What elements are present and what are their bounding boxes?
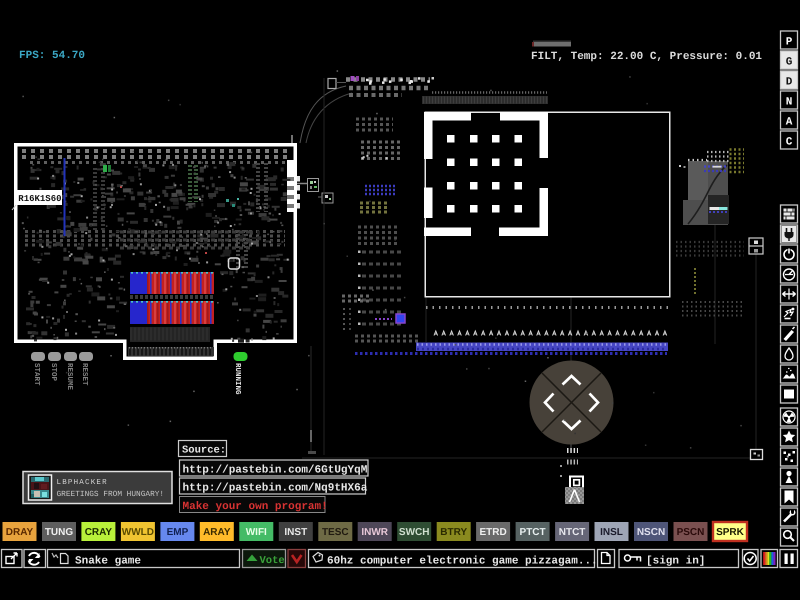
svg-text:http://pastebin.com/Nq9tHX6a: http://pastebin.com/Nq9tHX6a: [183, 482, 368, 494]
svg-text:http://pastebin.com/6GtUgYqM: http://pastebin.com/6GtUgYqM: [183, 464, 368, 476]
svg-text:[sign in]: [sign in]: [646, 556, 705, 568]
svg-text:SPRK: SPRK: [716, 527, 745, 538]
svg-text:Make your own program!: Make your own program!: [183, 501, 328, 513]
svg-text:PTCT: PTCT: [520, 527, 546, 538]
svg-text:EMP: EMP: [167, 527, 189, 538]
svg-text:60hz computer electronic game: 60hz computer electronic game pizzagam..…: [327, 556, 598, 568]
svg-text:ETRD: ETRD: [479, 527, 506, 538]
svg-text:Source:: Source:: [182, 445, 226, 457]
svg-text:CRAY: CRAY: [85, 527, 113, 538]
svg-text:D: D: [786, 77, 793, 89]
svg-text:G: G: [786, 57, 793, 69]
svg-text:NTCT: NTCT: [559, 527, 586, 538]
svg-text:WWLD: WWLD: [122, 527, 154, 538]
svg-text:Snake game: Snake game: [75, 556, 141, 568]
svg-text:PSCN: PSCN: [677, 527, 705, 538]
svg-text:START: START: [32, 363, 41, 386]
svg-text:INST: INST: [284, 527, 307, 538]
svg-text:C: C: [786, 137, 793, 149]
svg-text:STOP: STOP: [49, 363, 58, 382]
svg-text:FPS: 54.70: FPS: 54.70: [19, 50, 85, 62]
svg-text:WIFI: WIFI: [246, 527, 267, 538]
svg-text:INSL: INSL: [600, 527, 623, 538]
svg-text:ARAY: ARAY: [203, 527, 231, 538]
svg-text:Vote: Vote: [260, 555, 285, 567]
svg-text:BTRY: BTRY: [440, 527, 467, 538]
svg-text:LBPHACKER: LBPHACKER: [57, 478, 108, 487]
svg-text:RESET: RESET: [80, 363, 89, 386]
svg-text:TESC: TESC: [322, 527, 349, 538]
svg-text:DRAY: DRAY: [6, 527, 34, 538]
svg-text:SWCH: SWCH: [399, 527, 430, 538]
svg-text:A: A: [786, 117, 793, 129]
svg-text:P: P: [786, 37, 793, 49]
svg-text:R16K1S60: R16K1S60: [18, 194, 61, 204]
svg-text:N: N: [786, 97, 793, 109]
svg-text:GREETINGS FROM HUNGARY!: GREETINGS FROM HUNGARY!: [57, 490, 165, 499]
svg-text:RESUME: RESUME: [65, 363, 74, 391]
svg-text:FILT, Temp: 22.00 C, Pressure:: FILT, Temp: 22.00 C, Pressure: 0.01: [531, 51, 762, 63]
svg-text:NSCN: NSCN: [637, 527, 665, 538]
svg-text:TUNG: TUNG: [45, 527, 74, 538]
svg-text:RUNNING: RUNNING: [233, 363, 242, 395]
svg-text:INWR: INWR: [361, 527, 388, 538]
